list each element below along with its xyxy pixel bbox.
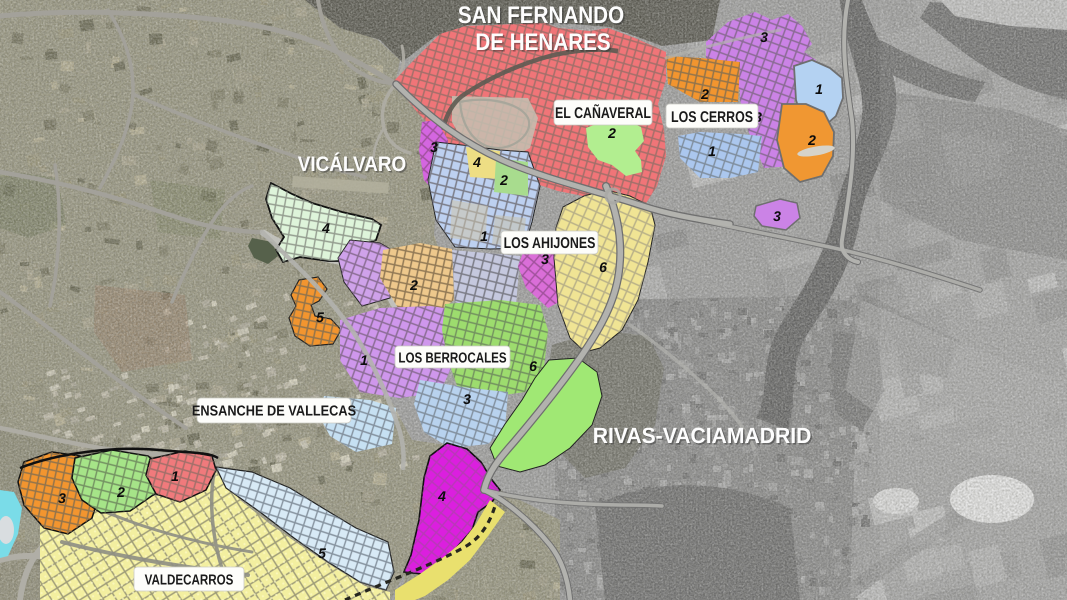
svg-text:DE HENARES: DE HENARES	[475, 29, 610, 56]
svg-text:2: 2	[607, 125, 616, 141]
svg-text:6: 6	[599, 259, 607, 275]
svg-text:1: 1	[480, 228, 488, 244]
svg-text:1: 1	[360, 352, 368, 368]
svg-text:ENSANCHE DE VALLECAS: ENSANCHE DE VALLECAS	[192, 404, 357, 420]
svg-text:LOS BERROCALES: LOS BERROCALES	[398, 351, 507, 367]
svg-text:4: 4	[321, 220, 330, 236]
svg-text:RIVAS-VACIAMADRID: RIVAS-VACIAMADRID	[593, 423, 812, 448]
svg-text:3: 3	[760, 29, 768, 45]
svg-text:2: 2	[409, 277, 418, 293]
svg-text:1: 1	[815, 81, 823, 97]
svg-text:VICÁLVARO: VICÁLVARO	[298, 152, 407, 176]
svg-text:4: 4	[472, 154, 481, 170]
svg-text:6: 6	[529, 358, 537, 374]
svg-text:VALDECARROS: VALDECARROS	[145, 573, 234, 589]
svg-text:3: 3	[463, 391, 471, 407]
svg-text:2: 2	[499, 172, 508, 188]
svg-text:SAN FERNANDO: SAN FERNANDO	[458, 2, 624, 29]
svg-text:2: 2	[700, 86, 709, 102]
svg-text:3: 3	[58, 490, 66, 506]
svg-text:1: 1	[708, 143, 716, 159]
svg-text:LOS AHIJONES: LOS AHIJONES	[504, 235, 596, 252]
svg-text:2: 2	[116, 484, 125, 500]
svg-text:3: 3	[773, 208, 781, 224]
svg-text:4: 4	[437, 488, 446, 504]
svg-text:5: 5	[318, 545, 326, 561]
svg-text:1: 1	[171, 468, 179, 484]
svg-text:2: 2	[807, 132, 816, 148]
svg-text:EL CAÑAVERAL: EL CAÑAVERAL	[555, 104, 651, 122]
svg-text:LOS CERROS: LOS CERROS	[671, 109, 753, 126]
svg-text:3: 3	[430, 139, 438, 155]
svg-text:5: 5	[316, 309, 324, 325]
